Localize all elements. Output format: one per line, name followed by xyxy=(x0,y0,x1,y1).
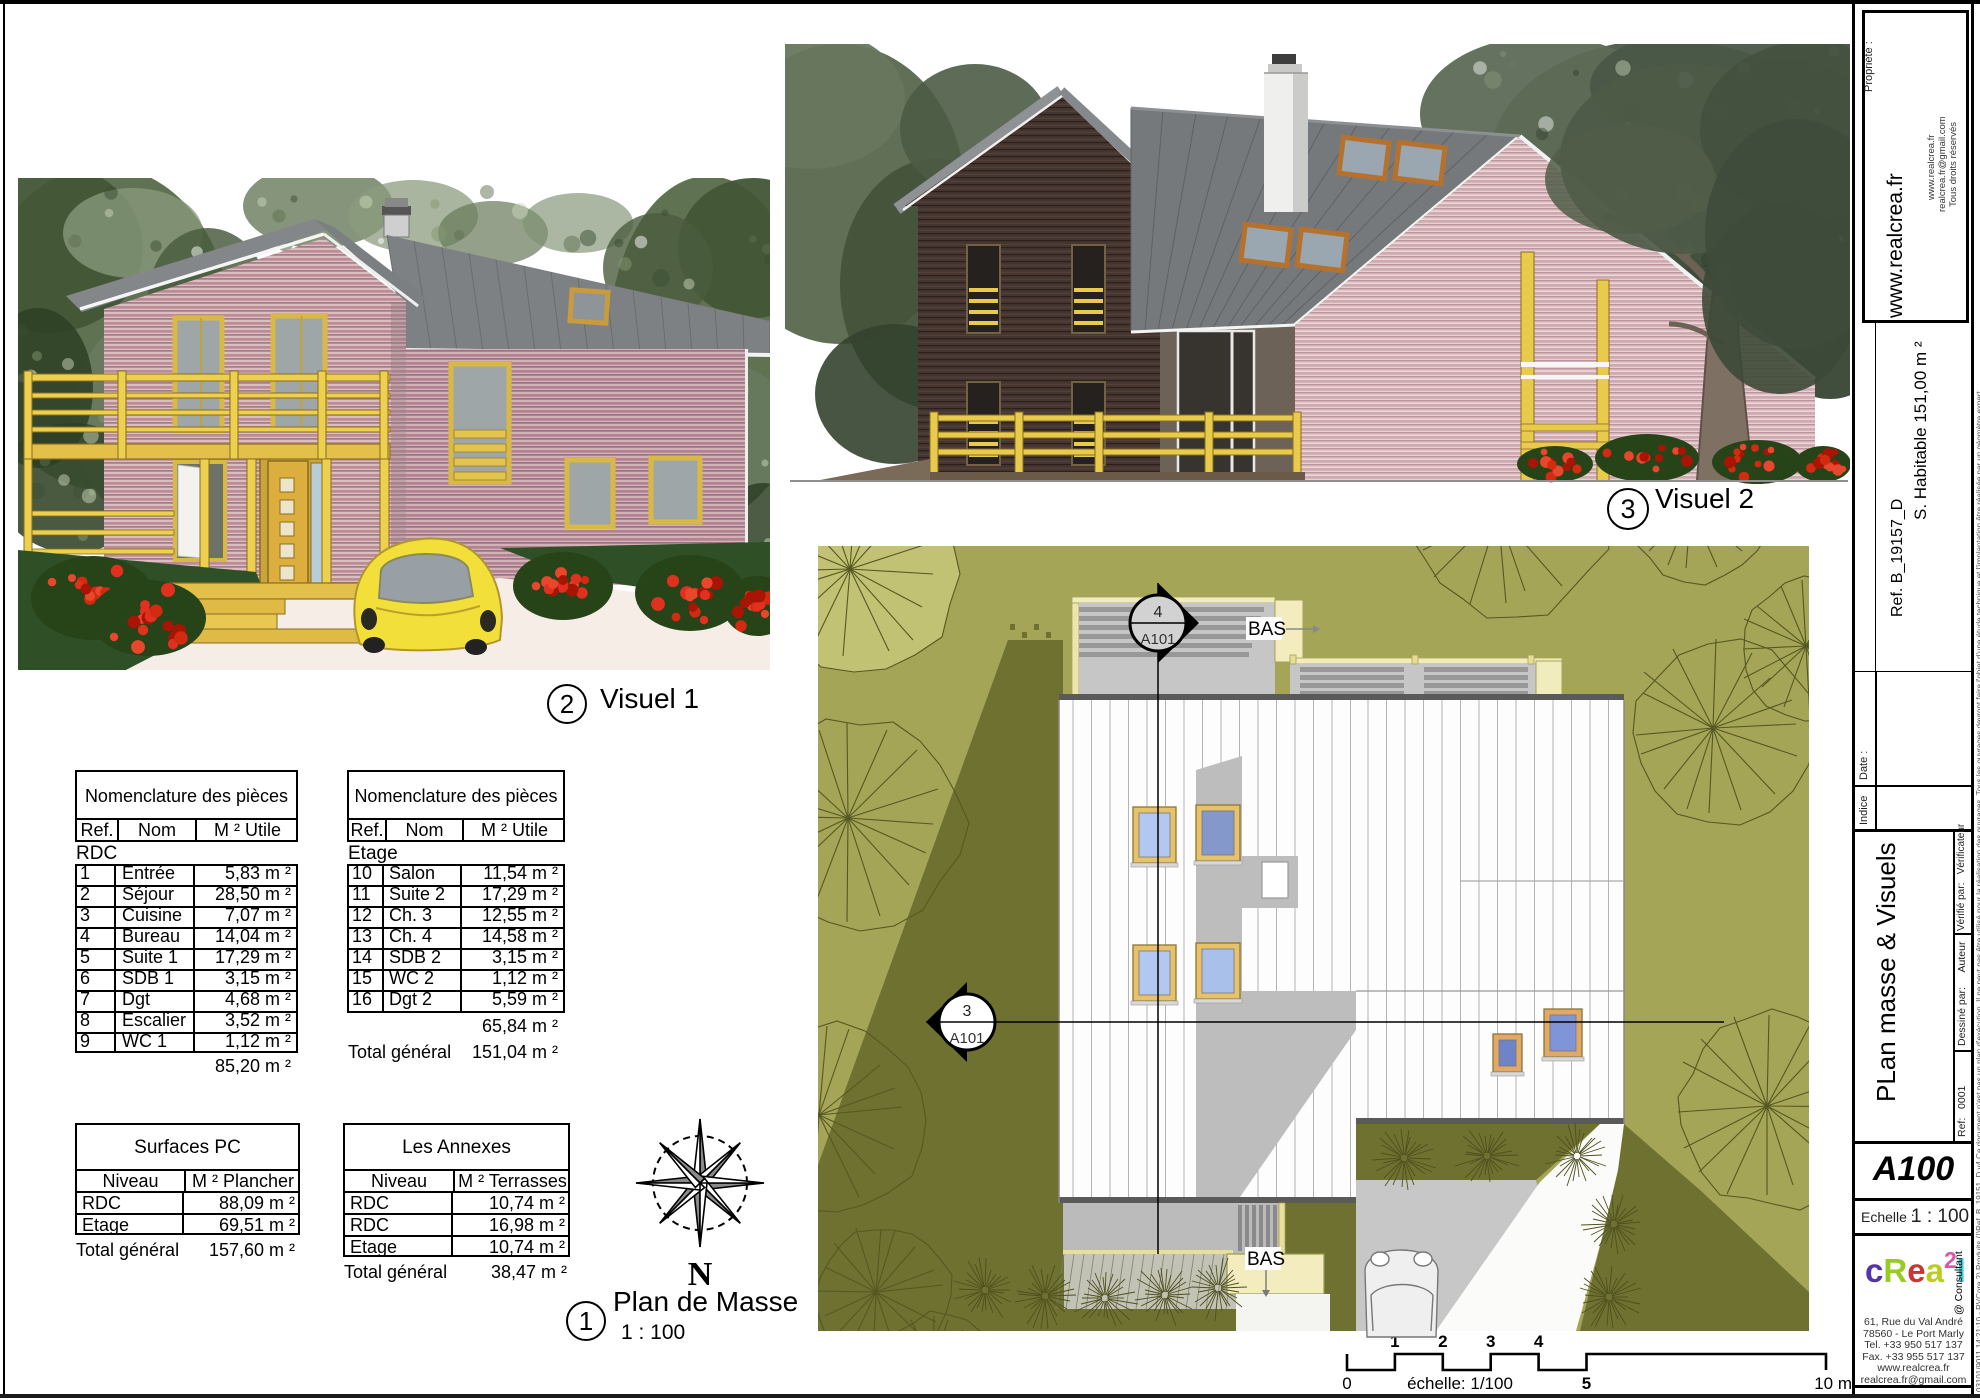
svg-text:3: 3 xyxy=(963,1003,972,1020)
svg-text:A101: A101 xyxy=(1140,631,1175,648)
svg-text:A101: A101 xyxy=(949,1030,984,1047)
svg-text:BAS: BAS xyxy=(1248,619,1286,640)
svg-text:4: 4 xyxy=(1154,604,1163,621)
svg-text:BAS: BAS xyxy=(1247,1249,1285,1270)
svg-text:N: N xyxy=(688,1256,713,1293)
